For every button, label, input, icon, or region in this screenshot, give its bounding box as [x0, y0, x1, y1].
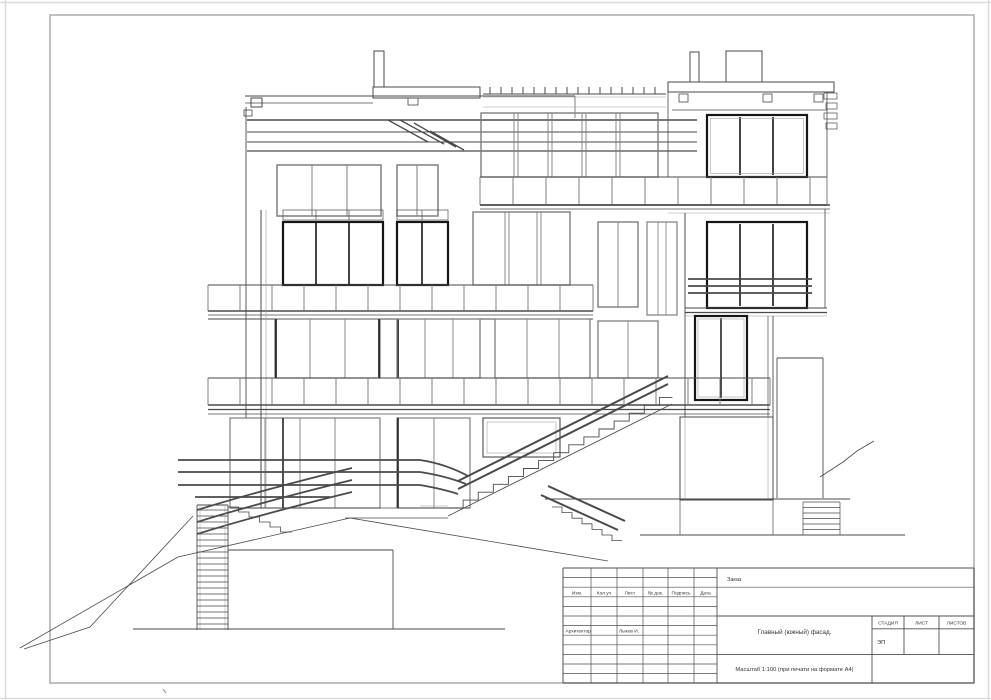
col-data: Дата — [700, 591, 711, 597]
main-staircase — [178, 376, 672, 541]
entry-fascia-panel — [483, 418, 560, 457]
col-list: Лист — [625, 591, 636, 597]
roof-vent-box — [251, 98, 262, 107]
chimney-right-large — [726, 51, 762, 82]
fascia-diagonal-hatch — [388, 120, 464, 150]
balcony-band-1 — [480, 177, 830, 213]
lower-flight-steps — [552, 507, 622, 541]
upper-windows-left — [277, 165, 438, 216]
chimney-right-small — [690, 52, 699, 82]
terrain-lines — [20, 441, 874, 649]
right-annex-wall — [777, 358, 823, 498]
drawing-title: Главный (южный) фасад. — [758, 628, 832, 636]
role-label: Архитектор — [566, 629, 592, 635]
sheet-fold-tick — [163, 689, 166, 693]
stair-handrails — [458, 376, 668, 489]
picture-window-top-right — [707, 115, 807, 177]
terrain-line-right — [820, 441, 874, 477]
stair-tower-treads — [197, 510, 228, 624]
roof-left-block — [244, 51, 575, 418]
upper-glazing-centre — [481, 113, 658, 177]
roof-right-block — [668, 51, 837, 205]
terrace-railings — [178, 460, 420, 497]
order-label: Заказ — [727, 577, 742, 583]
chimney-left — [374, 51, 384, 87]
floor3-right-window — [685, 209, 827, 316]
col-izm: Изм. — [572, 591, 582, 597]
scale-note: Масштаб 1:100 (при печати на формате А4) — [735, 667, 853, 673]
floor3-windows — [283, 210, 677, 315]
col-podpis: Подпись — [672, 591, 691, 597]
col-koluch: Кол.уч — [597, 591, 612, 597]
drawing-sheet: Заказ Изм. Кол.уч Лист № док. Подпись Да… — [0, 0, 991, 700]
sheet-label: ЛИСТ — [915, 621, 928, 627]
stage-value: ЭП — [877, 640, 885, 646]
elevation-drawing-canvas: Заказ Изм. Кол.уч Лист № док. Подпись Да… — [0, 0, 991, 700]
floor4-right-door — [695, 316, 773, 417]
fascia-band — [247, 120, 697, 151]
building-elevation — [20, 51, 905, 649]
role-name: Лыков И. — [619, 629, 639, 635]
stage-label: СТАДИЯ — [878, 621, 898, 627]
roof-terrace-railing — [483, 87, 666, 107]
roof-slab-right — [668, 82, 834, 92]
curved-railings — [197, 468, 352, 534]
left-exterior-stair — [197, 468, 352, 630]
title-block: Заказ Изм. Кол.уч Лист № док. Подпись Да… — [563, 568, 974, 683]
balcony-band-3 — [208, 378, 770, 414]
railing-posts — [490, 87, 655, 94]
col-ndok: № док. — [648, 591, 663, 597]
exterior-steps-right — [803, 502, 840, 535]
sheets-label: ЛИСТОВ — [947, 621, 967, 627]
